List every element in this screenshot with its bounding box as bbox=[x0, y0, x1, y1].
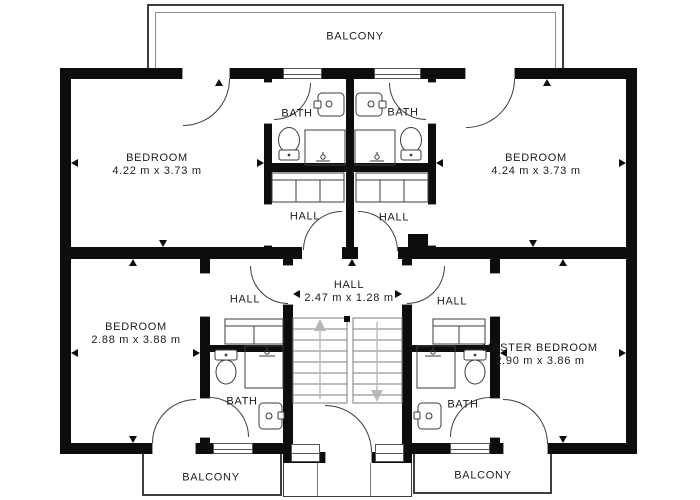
shower-icon bbox=[305, 130, 345, 165]
faucet-icon bbox=[259, 347, 275, 356]
wardrobe-icon bbox=[433, 319, 485, 344]
room-name: MASTER BEDROOM bbox=[482, 342, 598, 355]
room-dims: 4.22 m x 3.73 m bbox=[112, 165, 201, 178]
wardrobe-icon bbox=[225, 319, 283, 344]
balcony-top-label: BALCONY bbox=[326, 31, 383, 44]
master-bedroom-label: MASTER BEDROOM 2.90 m x 3.86 m bbox=[482, 342, 598, 368]
hall-lower-left-label: HALL bbox=[230, 294, 260, 307]
room-name: HALL bbox=[304, 279, 393, 292]
room-dims: 2.88 m x 3.88 m bbox=[91, 334, 180, 347]
fixtures-layer bbox=[0, 0, 700, 500]
bedroom-top-left-label: BEDROOM 4.22 m x 3.73 m bbox=[112, 152, 201, 178]
hall-lower-right-label: HALL bbox=[437, 296, 467, 309]
toilet-icon bbox=[279, 128, 300, 161]
toilet-icon bbox=[401, 128, 422, 161]
bath-top-right-label: BATH bbox=[387, 107, 418, 120]
room-name: BEDROOM bbox=[112, 152, 201, 165]
bath-lower-left-label: BATH bbox=[226, 396, 257, 409]
hall-upper-right-label: HALL bbox=[379, 212, 409, 225]
balcony-bottom-left-label: BALCONY bbox=[182, 472, 239, 485]
faucet-icon bbox=[370, 152, 384, 161]
balcony-bottom-right-label: BALCONY bbox=[454, 470, 511, 483]
bedroom-top-right-label: BEDROOM 4.24 m x 3.73 m bbox=[491, 152, 580, 178]
hall-upper-left-label: HALL bbox=[290, 211, 320, 224]
shower-icon bbox=[355, 130, 395, 165]
faucet-icon bbox=[425, 347, 441, 356]
room-dims: 2.47 m x 1.28 m bbox=[304, 292, 393, 305]
room-dims: 2.90 m x 3.86 m bbox=[482, 355, 598, 368]
bath-lower-right-label: BATH bbox=[447, 399, 478, 412]
dimension-tick bbox=[71, 79, 626, 443]
bedroom-lower-left-label: BEDROOM 2.88 m x 3.88 m bbox=[91, 321, 180, 347]
washbasin-icon bbox=[314, 93, 344, 116]
washbasin-icon bbox=[259, 403, 284, 429]
wardrobe-icon bbox=[272, 173, 344, 202]
sink-counter bbox=[245, 346, 283, 388]
stair-up-arrow bbox=[314, 319, 326, 399]
room-name: BEDROOM bbox=[91, 321, 180, 334]
wardrobe-icon bbox=[356, 173, 428, 202]
floor-plan: BALCONY BEDROOM 4.22 m x 3.73 m BEDROOM … bbox=[0, 0, 700, 500]
stairs bbox=[293, 316, 402, 403]
hall-center-label: HALL 2.47 m x 1.28 m bbox=[304, 279, 393, 305]
bath-top-left-label: BATH bbox=[281, 108, 312, 121]
room-name: BEDROOM bbox=[491, 152, 580, 165]
stair-newel-marker bbox=[344, 316, 350, 322]
faucet-icon bbox=[316, 152, 330, 161]
sink-counter bbox=[417, 346, 455, 388]
washbasin-icon bbox=[356, 93, 386, 116]
washbasin-icon bbox=[414, 403, 441, 429]
room-dims: 4.24 m x 3.73 m bbox=[491, 165, 580, 178]
toilet-icon bbox=[215, 350, 237, 384]
